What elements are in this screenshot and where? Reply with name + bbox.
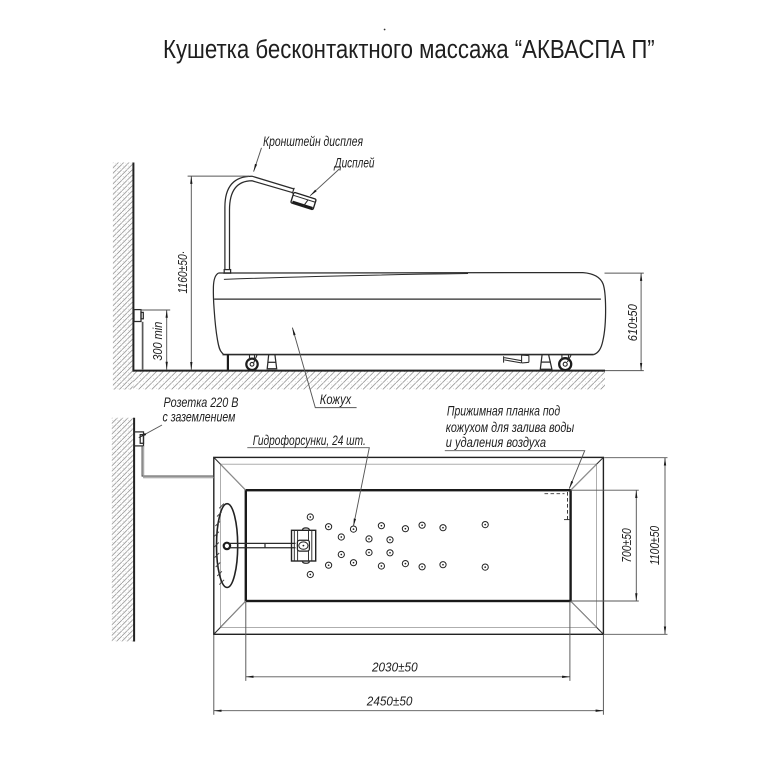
svg-text:2450±50: 2450±50	[366, 693, 413, 708]
svg-text:кожухом для залива воды: кожухом для залива воды	[446, 420, 574, 435]
svg-text:700±50: 700±50	[619, 528, 634, 563]
svg-text:Дисплей: Дисплей	[333, 156, 375, 171]
svg-text:Розетка 220 В: Розетка 220 В	[164, 395, 239, 410]
svg-text:300 min: 300 min	[150, 322, 165, 361]
svg-text:Кушетка бесконтактного массажа: Кушетка бесконтактного массажа “АКВАСПА …	[163, 36, 655, 64]
svg-text:Кожух: Кожух	[320, 392, 352, 407]
svg-text:Прижимная планка под: Прижимная планка под	[447, 403, 561, 418]
svg-text:с заземлением: с заземлением	[163, 409, 236, 424]
svg-text:Гидрофорсунки, 24 шт.: Гидрофорсунки, 24 шт.	[253, 433, 366, 448]
svg-text:2030±50: 2030±50	[371, 660, 418, 675]
svg-text:1160±50·: 1160±50·	[175, 251, 190, 294]
svg-text:и удаления воздуха: и удаления воздуха	[446, 435, 547, 450]
svg-text:610±50: 610±50	[625, 304, 640, 342]
svg-text:1100±50: 1100±50	[647, 525, 662, 565]
svg-text:Кронштейн дисплея: Кронштейн дисплея	[263, 134, 363, 149]
